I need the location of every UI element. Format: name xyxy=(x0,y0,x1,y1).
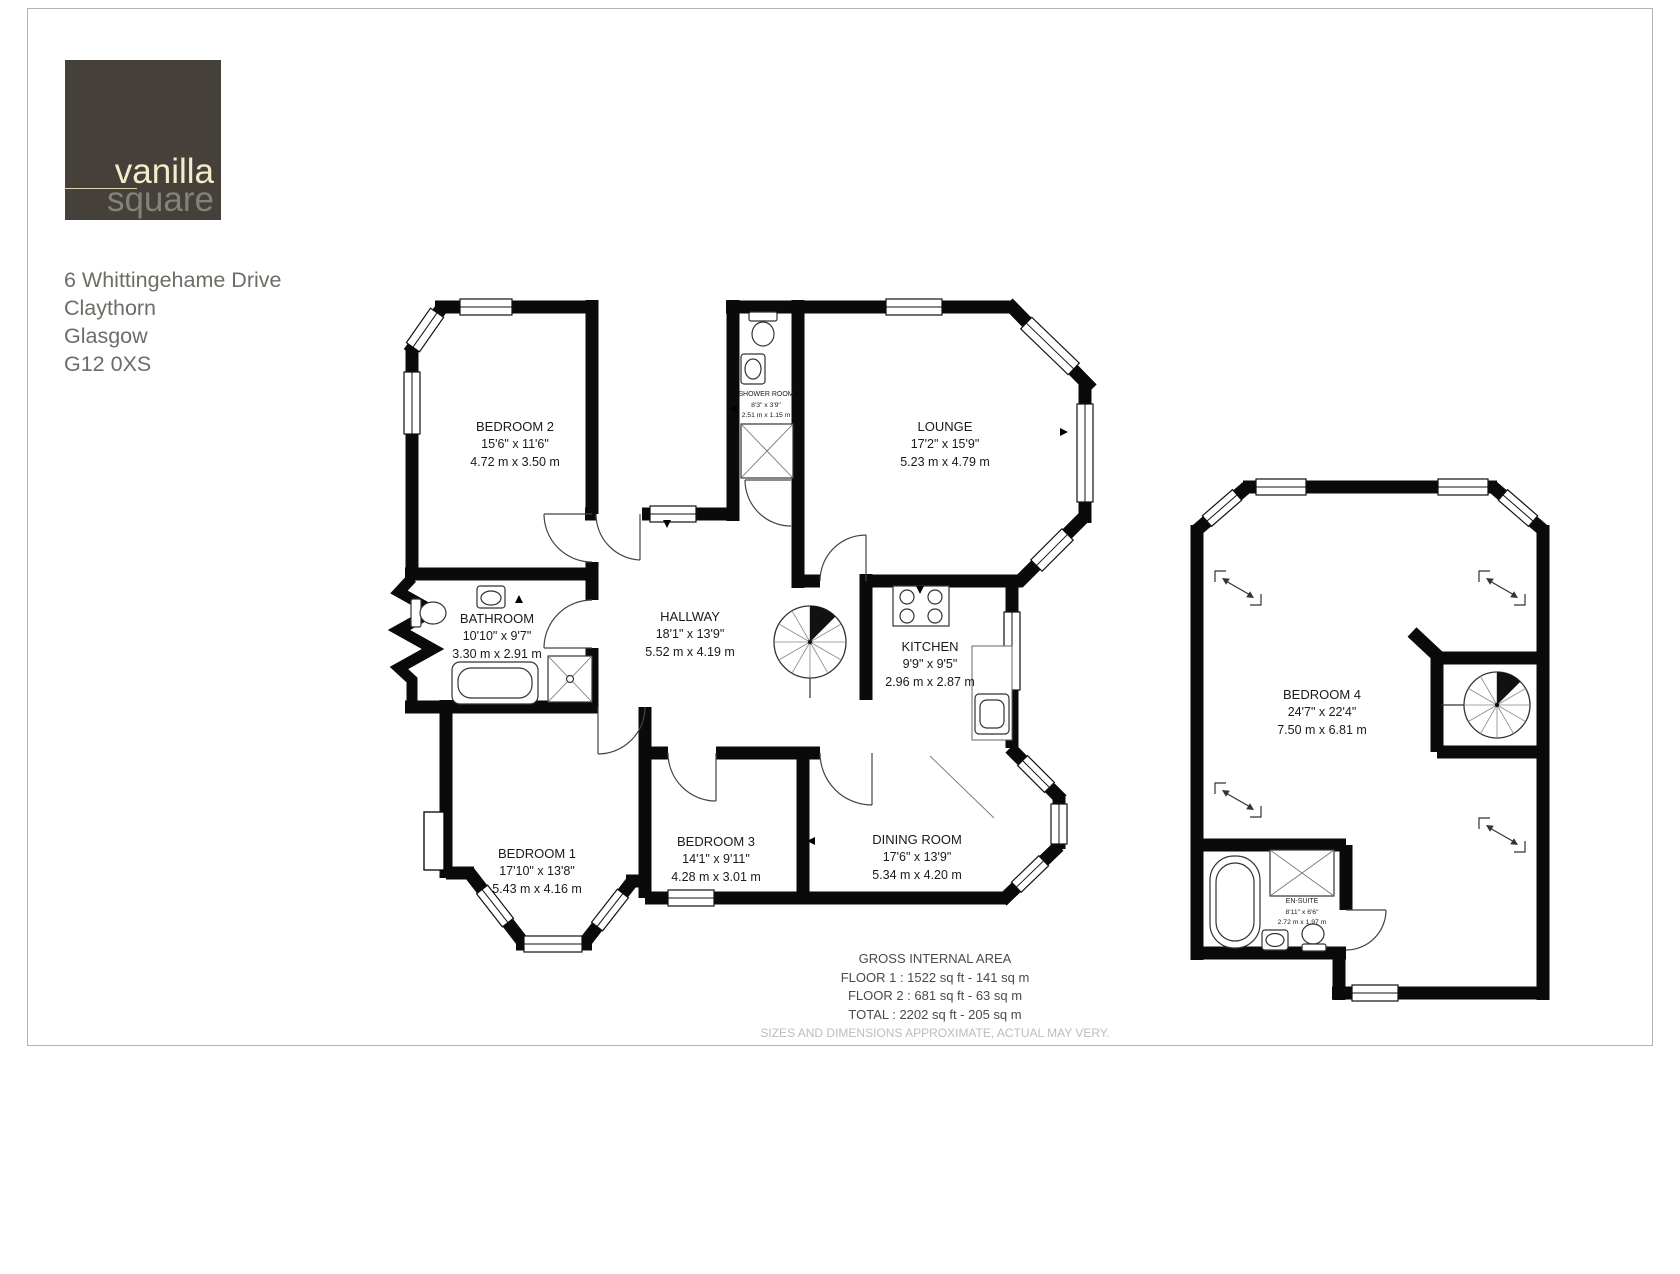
room-dims-imperial: 10'10" x 9'7" xyxy=(452,628,542,646)
room-label-bathroom: BATHROOM 10'10" x 9'7" 3.30 m x 2.91 m xyxy=(452,610,542,664)
room-label-bedroom-2: BEDROOM 2 15'6" x 11'6" 4.72 m x 3.50 m xyxy=(470,418,560,472)
room-dims-imperial: 15'6" x 11'6" xyxy=(470,436,560,454)
room-name: BEDROOM 4 xyxy=(1277,686,1367,704)
ensuite-bathtub-icon xyxy=(1210,856,1260,948)
room-dims-imperial: 17'2" x 15'9" xyxy=(900,436,990,454)
bathroom-sink-icon xyxy=(477,586,505,608)
room-dims-imperial: 8'3" x 3'9" xyxy=(738,401,793,411)
room-label-lounge: LOUNGE 17'2" x 15'9" 5.23 m x 4.79 m xyxy=(900,418,990,472)
room-name: DINING ROOM xyxy=(872,831,962,849)
room-label-bedroom-1: BEDROOM 1 17'10" x 13'8" 5.43 m x 4.16 m xyxy=(492,845,582,899)
loft-marker-icon xyxy=(1479,818,1525,852)
room-label-kitchen: KITCHEN 9'9" x 9'5" 2.96 m x 2.87 m xyxy=(885,638,975,692)
room-name: EN-SUITE xyxy=(1278,897,1327,908)
loft-marker-icon xyxy=(1215,571,1261,605)
room-dims-metric: 2.96 m x 2.87 m xyxy=(885,674,975,692)
room-label-hallway: HALLWAY 18'1" x 13'9" 5.52 m x 4.19 m xyxy=(645,608,735,662)
floor2-doors xyxy=(1346,910,1386,950)
loft-marker-icon xyxy=(1479,571,1525,605)
spiral-staircase-icon xyxy=(774,606,846,698)
gia-floor1: FLOOR 1 : 1522 sq ft - 141 sq m xyxy=(760,969,1109,988)
room-name: HALLWAY xyxy=(645,608,735,626)
bathroom-toilet-icon xyxy=(411,599,446,627)
room-dims-metric: 5.23 m x 4.79 m xyxy=(900,454,990,472)
shower-room-sink-icon xyxy=(741,354,765,384)
room-dims-metric: 5.52 m x 4.19 m xyxy=(645,644,735,662)
gross-internal-area-block: GROSS INTERNAL AREA FLOOR 1 : 1522 sq ft… xyxy=(760,950,1109,1043)
room-dims-imperial: 8'11" x 6'6" xyxy=(1278,908,1327,918)
gia-disclaimer: SIZES AND DIMENSIONS APPROXIMATE, ACTUAL… xyxy=(760,1024,1109,1043)
room-dims-imperial: 24'7" x 22'4" xyxy=(1277,704,1367,722)
floor2-spiral-staircase-icon xyxy=(1441,672,1530,738)
shower-room-tray-icon xyxy=(741,424,793,478)
room-label-dining-room: DINING ROOM 17'6" x 13'9" 5.34 m x 4.20 … xyxy=(872,831,962,885)
ensuite-shower-icon xyxy=(1270,850,1334,896)
kitchen-peninsula-line xyxy=(930,756,994,818)
room-name: BATHROOM xyxy=(452,610,542,628)
room-dims-metric: 2.51 m x 1.15 m xyxy=(738,411,793,421)
floor2-plan xyxy=(1197,479,1543,1001)
room-dims-imperial: 17'6" x 13'9" xyxy=(872,849,962,867)
room-dims-metric: 7.50 m x 6.81 m xyxy=(1277,722,1367,740)
gia-total: TOTAL : 2202 sq ft - 205 sq m xyxy=(760,1006,1109,1025)
room-label-bedroom-4: BEDROOM 4 24'7" x 22'4" 7.50 m x 6.81 m xyxy=(1277,686,1367,740)
room-dims-imperial: 17'10" x 13'8" xyxy=(492,863,582,881)
room-label-en-suite: EN-SUITE 8'11" x 6'6" 2.72 m x 1.97 m xyxy=(1278,897,1327,928)
loft-marker-icon xyxy=(1215,783,1261,817)
room-dims-imperial: 14'1" x 9'11" xyxy=(671,851,761,869)
room-dims-metric: 4.28 m x 3.01 m xyxy=(671,869,761,887)
chimney-breast xyxy=(424,812,444,870)
bathroom-shower-icon xyxy=(548,656,592,702)
ensuite-sink-icon xyxy=(1262,930,1288,950)
room-label-shower-room: SHOWER ROOM 8'3" x 3'9" 2.51 m x 1.15 m xyxy=(738,390,793,421)
room-label-bedroom-3: BEDROOM 3 14'1" x 9'11" 4.28 m x 3.01 m xyxy=(671,833,761,887)
bathtub-icon xyxy=(452,662,538,704)
room-dims-metric: 5.43 m x 4.16 m xyxy=(492,881,582,899)
room-dims-imperial: 9'9" x 9'5" xyxy=(885,656,975,674)
room-name: BEDROOM 1 xyxy=(492,845,582,863)
room-dims-imperial: 18'1" x 13'9" xyxy=(645,626,735,644)
room-name: BEDROOM 2 xyxy=(470,418,560,436)
floorplan-page: vanilla square 6 Whittingehame Drive Cla… xyxy=(0,0,1680,1274)
room-name: SHOWER ROOM xyxy=(738,390,793,401)
shower-room-toilet-icon xyxy=(749,312,777,346)
room-name: BEDROOM 3 xyxy=(671,833,761,851)
gia-title: GROSS INTERNAL AREA xyxy=(760,950,1109,969)
room-name: LOUNGE xyxy=(900,418,990,436)
room-dims-metric: 5.34 m x 4.20 m xyxy=(872,867,962,885)
room-dims-metric: 4.72 m x 3.50 m xyxy=(470,454,560,472)
kitchen-sink-icon xyxy=(975,694,1009,734)
room-dims-metric: 2.72 m x 1.97 m xyxy=(1278,918,1327,928)
floorplan-drawing xyxy=(0,0,1680,1274)
ensuite-toilet-icon xyxy=(1302,924,1326,951)
room-dims-metric: 3.30 m x 2.91 m xyxy=(452,646,542,664)
gia-floor2: FLOOR 2 : 681 sq ft - 63 sq m xyxy=(760,987,1109,1006)
room-name: KITCHEN xyxy=(885,638,975,656)
